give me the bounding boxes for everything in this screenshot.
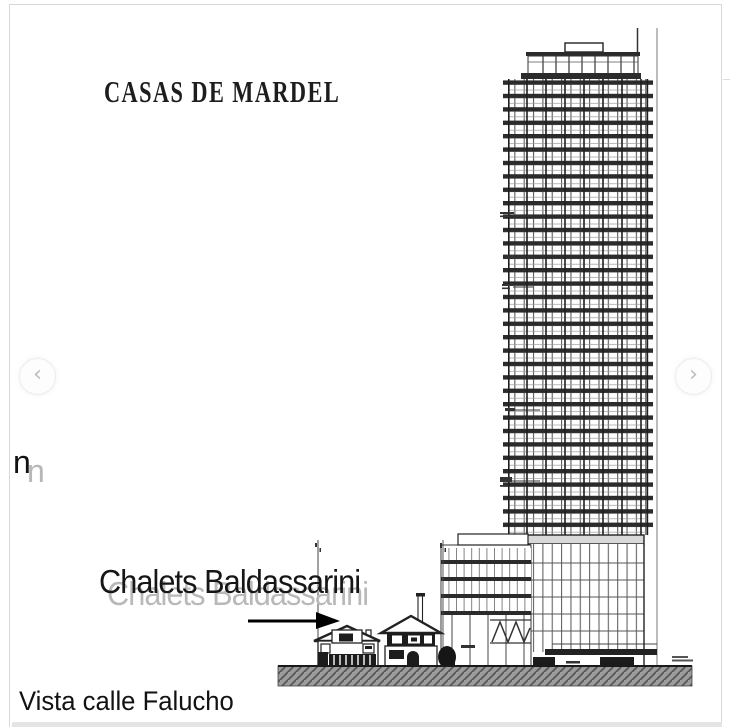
- carousel-slide-viewer: CASAS DE MARDEL: [0, 0, 730, 727]
- pointer-arrow: [248, 612, 340, 629]
- elevation-drawing: [0, 0, 730, 727]
- edge-text-fragment: n: [13, 444, 31, 481]
- podium-building: [440, 534, 531, 668]
- carousel-next-button[interactable]: ›: [675, 358, 712, 395]
- carousel-prev-button[interactable]: ‹: [19, 358, 56, 395]
- street-note: [672, 656, 693, 662]
- ground-line: [278, 666, 692, 686]
- chevron-left-icon: ‹: [33, 364, 42, 386]
- chevron-right-icon: ›: [689, 364, 698, 386]
- slide-caption: Vista calle Falucho: [19, 686, 234, 717]
- chalet-1: [314, 626, 380, 668]
- chalets-label: Chalets Baldassarini: [99, 563, 360, 601]
- next-content-edge: [12, 722, 722, 727]
